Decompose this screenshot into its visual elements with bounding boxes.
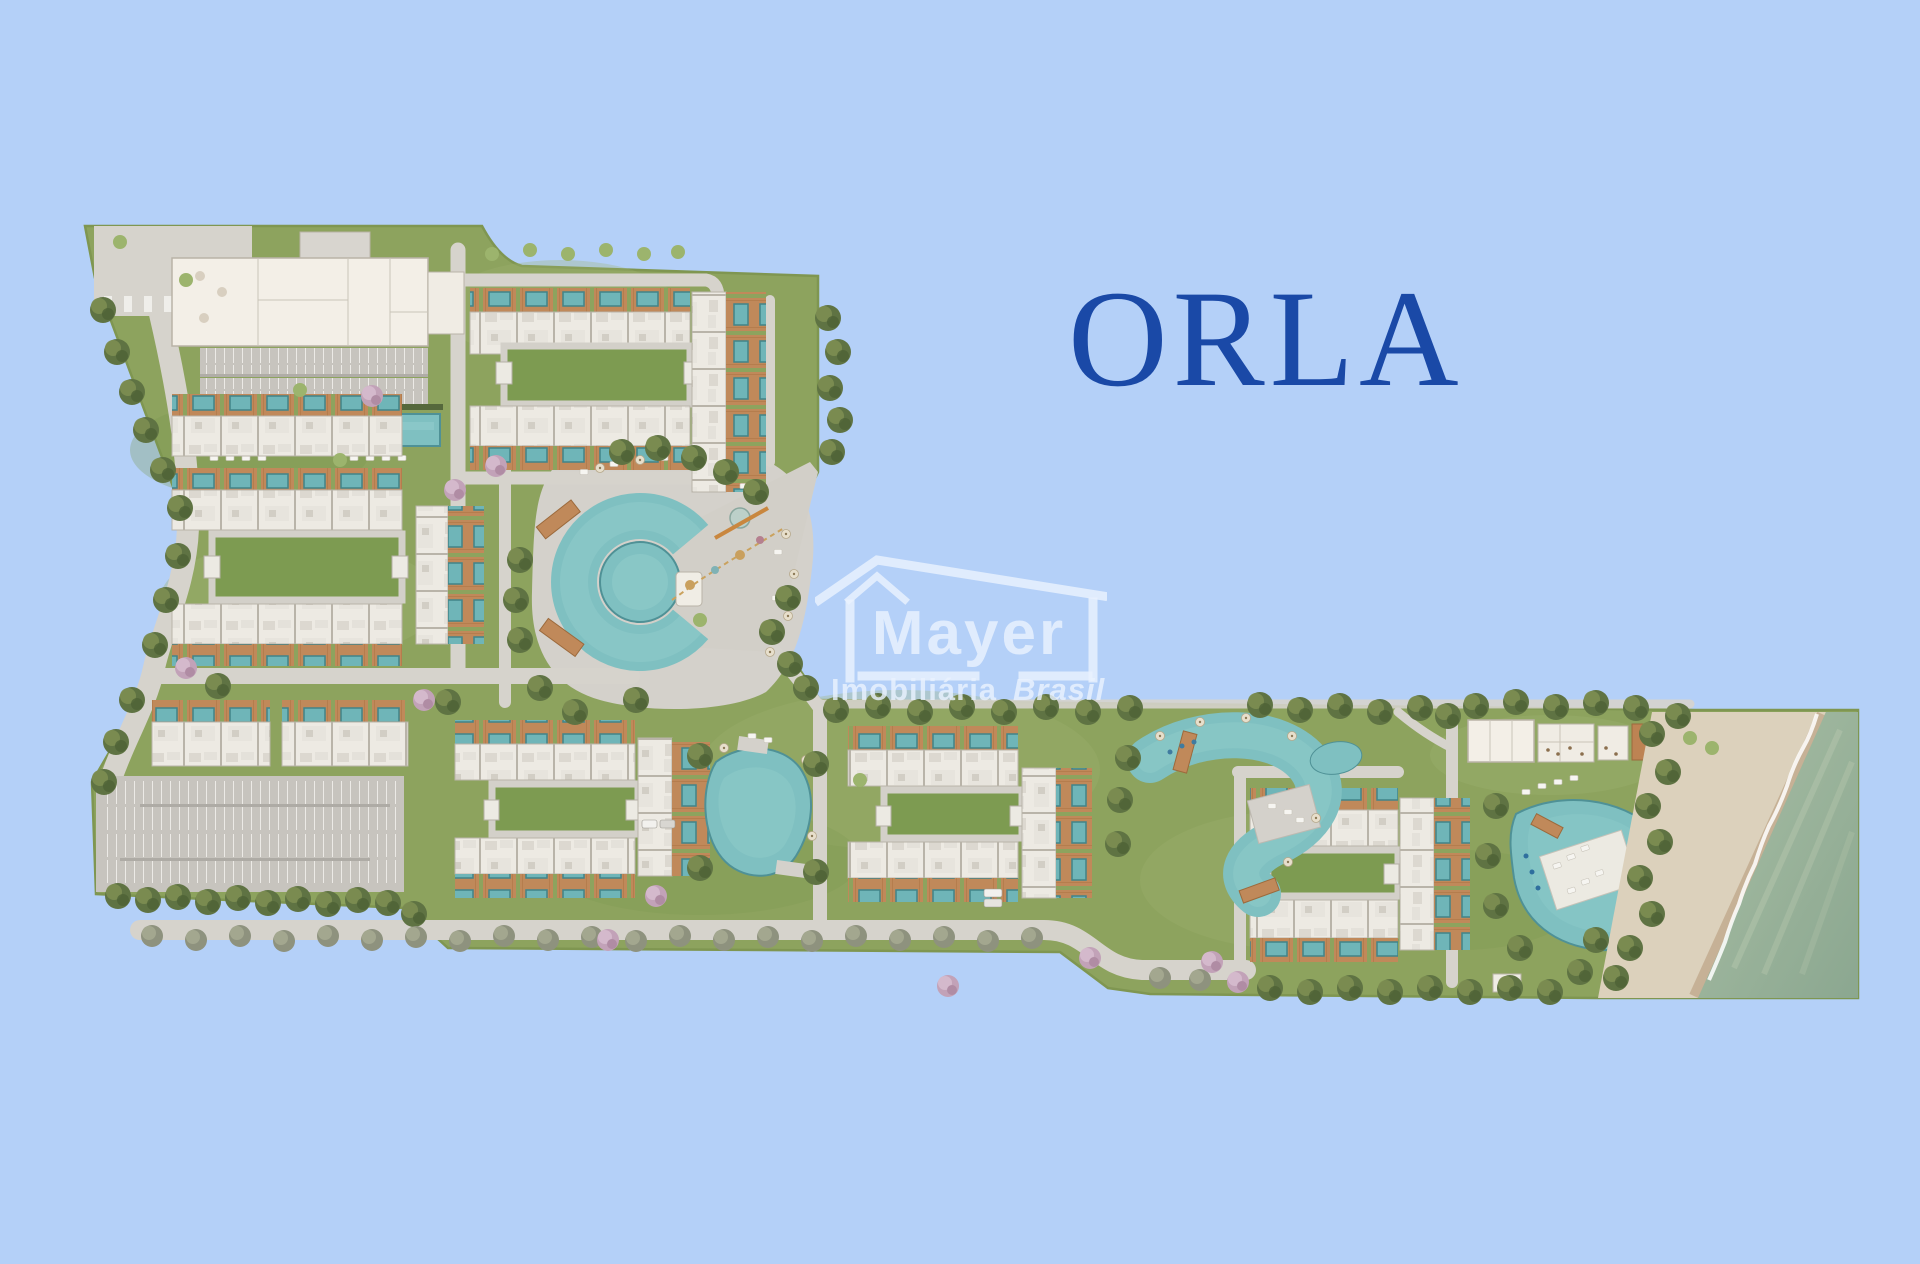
townhouse-column-k: [1400, 798, 1470, 950]
townhouse-cluster-c: [172, 394, 408, 666]
townhouse-column-d: [416, 506, 484, 644]
townhouse-row-e2: [282, 700, 408, 766]
master-plan-svg: [0, 0, 1920, 1264]
project-title: ORLA: [1068, 270, 1464, 408]
site-plan-canvas: Mayer ImobiliáriaBrasil ORLA: [0, 0, 1920, 1264]
parking-lot: [96, 776, 404, 892]
townhouse-row-e1: [152, 700, 270, 766]
townhouse-column-h2: [1022, 768, 1092, 898]
